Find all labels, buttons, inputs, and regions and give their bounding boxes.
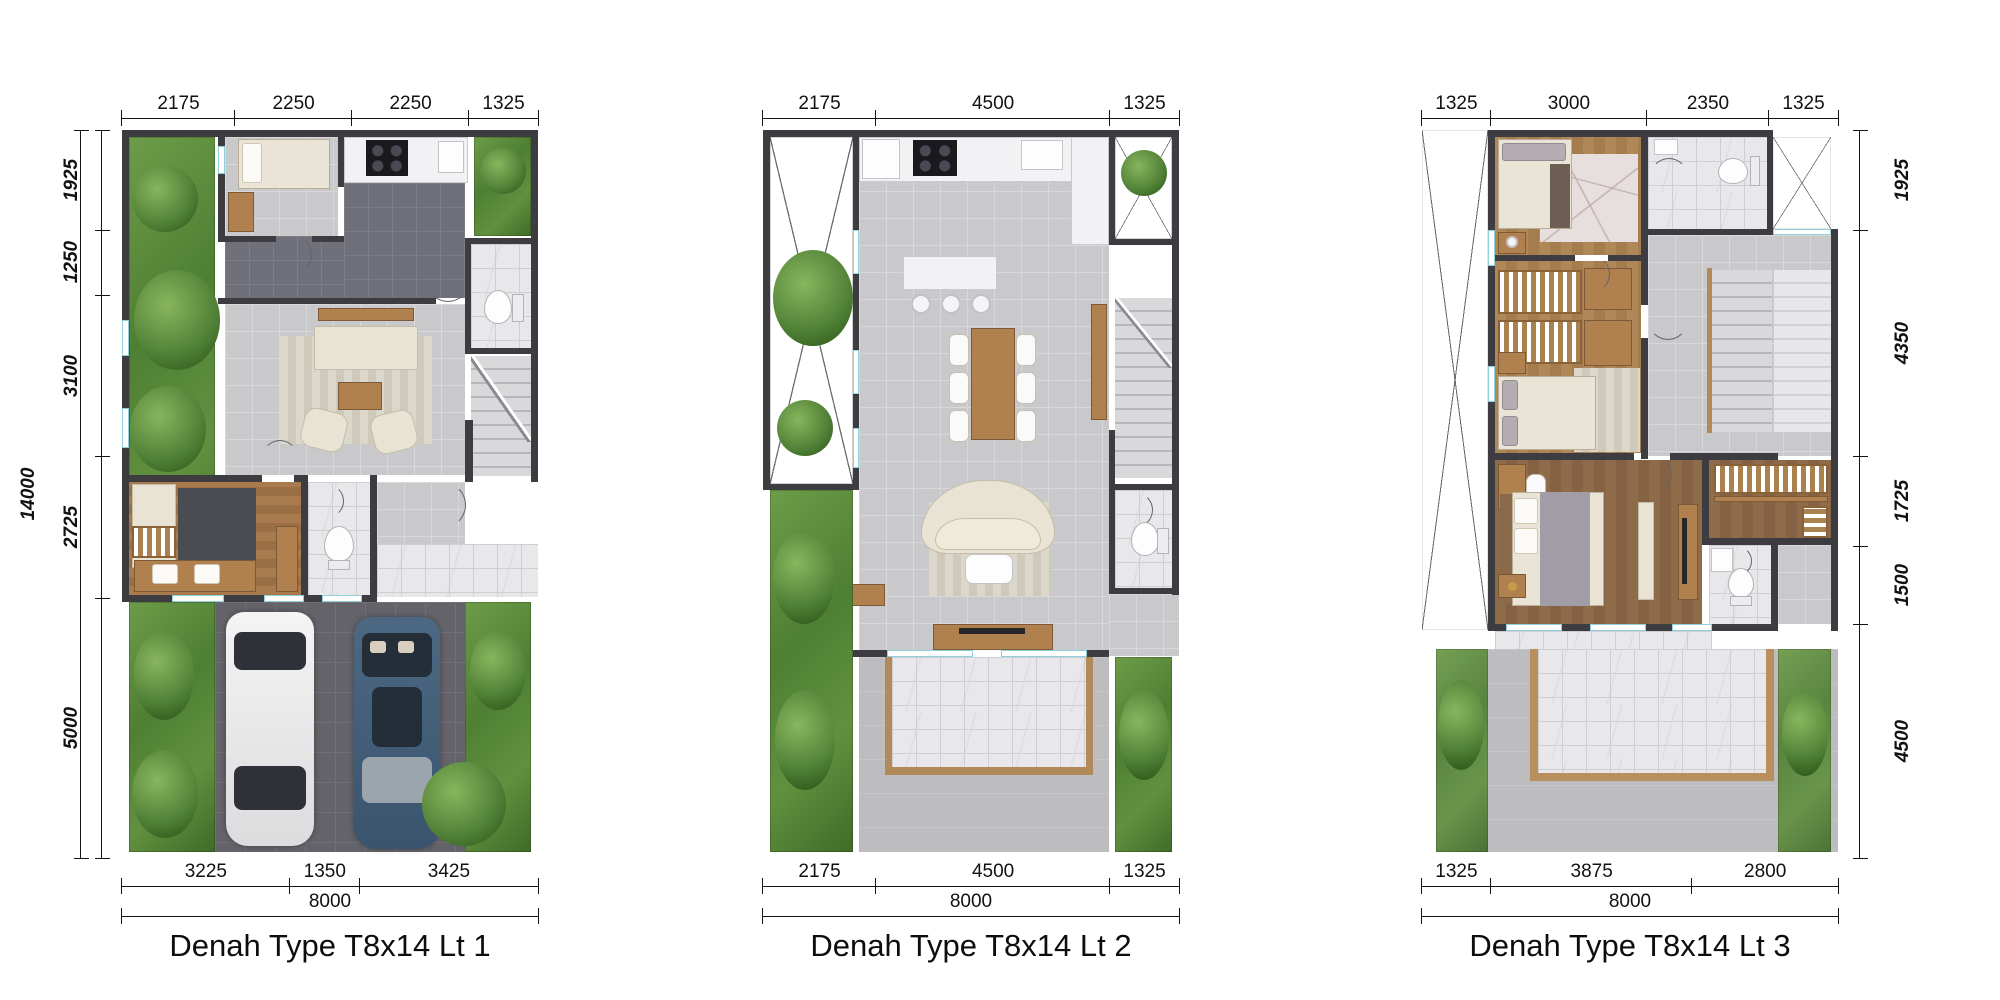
wall	[465, 238, 471, 354]
tree-icon	[773, 250, 853, 346]
window	[122, 320, 129, 356]
tv	[959, 628, 1025, 634]
dim-row-bottom: 1325 3875 2800	[1422, 862, 1838, 894]
nightstand	[1498, 352, 1526, 374]
closet-rack-side	[1802, 506, 1828, 538]
fridge	[862, 139, 900, 179]
dim-label: 8000	[763, 891, 1179, 913]
door-arc	[427, 260, 469, 302]
dim-segment: 1325	[1422, 862, 1491, 894]
door-arc	[1117, 492, 1153, 528]
dim-row-top: 2175 4500 1325	[763, 94, 1179, 126]
dim-tick	[1838, 908, 1839, 924]
dim-label: 4500	[876, 861, 1110, 883]
dim-row-overall: 8000	[763, 892, 1179, 924]
door-arc	[310, 484, 344, 518]
dim-segment: 2175	[763, 94, 876, 126]
dim-tick	[1838, 878, 1839, 894]
wall	[1767, 130, 1773, 235]
sink	[1654, 139, 1678, 155]
wall	[1771, 545, 1778, 631]
dim-label: 4350	[1892, 308, 1914, 378]
wall	[1488, 130, 1773, 137]
tv-console	[1678, 504, 1698, 600]
dim-label: 4500	[1892, 706, 1914, 776]
dim-segment: 3425	[360, 862, 538, 894]
dim-label: 3425	[360, 861, 538, 883]
window	[218, 146, 225, 174]
door-arc	[1572, 255, 1610, 293]
wall	[301, 475, 308, 595]
garden-faded-left	[1422, 130, 1488, 630]
wall	[1085, 650, 1109, 657]
dim-segment: 1325	[1769, 94, 1838, 126]
door-arc	[1648, 300, 1688, 340]
window	[172, 595, 224, 602]
cabinet	[276, 526, 298, 592]
dim-label: 1925	[61, 145, 83, 215]
dim-row-top: 2175 2250 2250 1325	[122, 94, 538, 126]
dim-label: 3875	[1491, 861, 1693, 883]
garden-faded-corner	[1773, 137, 1831, 229]
dim-segment: 3000	[1491, 94, 1647, 126]
dim-tick	[1853, 858, 1868, 859]
dim-tick	[74, 858, 89, 859]
car-seat	[398, 641, 414, 653]
window	[1488, 230, 1495, 266]
wall	[465, 238, 531, 244]
toilet	[484, 290, 512, 324]
stairs-landing	[1115, 298, 1172, 368]
dim-segment: 1325	[469, 94, 538, 126]
dim-label: 2175	[122, 93, 235, 115]
dim-label: 3100	[61, 341, 83, 411]
wall	[218, 236, 276, 242]
dim-segment: 2250	[235, 94, 352, 126]
wall	[1641, 338, 1648, 459]
dim-tick	[95, 456, 110, 457]
stairs-flight-up	[1712, 270, 1772, 432]
dark-rug	[178, 488, 256, 560]
pillow	[1502, 380, 1518, 410]
dim-tick	[1853, 624, 1868, 625]
bush-icon	[1782, 690, 1828, 776]
dim-line-left-segments: 1925 1250 3100 2725 5000	[101, 130, 102, 858]
dining-chair	[949, 372, 969, 404]
dining-chair	[949, 334, 969, 366]
sill-band	[1495, 631, 1712, 649]
dim-segment: 1325	[1422, 94, 1491, 126]
car-seat	[370, 641, 386, 653]
wall	[1702, 460, 1709, 544]
door-arc	[274, 236, 312, 274]
bush-icon	[773, 530, 835, 624]
bush-icon	[777, 400, 833, 456]
porch-floor	[377, 544, 538, 597]
coffee-table	[965, 554, 1013, 584]
window	[1488, 366, 1495, 402]
car-rear-glass	[362, 633, 432, 677]
dim-label: 5000	[61, 693, 83, 763]
floor-plan-sheet: 2175 2250 2250 1325 14000 1925 1250 3100…	[0, 0, 2000, 1000]
wall	[370, 475, 377, 595]
stairs-flight-ghost	[1774, 270, 1831, 432]
dim-label: 1250	[61, 227, 83, 297]
balcony	[1530, 649, 1774, 781]
dim-tick	[538, 908, 539, 924]
wall	[122, 130, 129, 595]
window	[264, 595, 304, 602]
pillow	[1502, 416, 1518, 446]
wall	[1831, 229, 1838, 631]
coffee-table	[338, 382, 382, 410]
dim-label: 2250	[235, 93, 352, 115]
wall	[1109, 484, 1179, 490]
lamp-icon	[1506, 236, 1518, 248]
dining-chair	[1016, 334, 1036, 366]
door-arc	[1650, 158, 1688, 196]
dim-tick	[1179, 878, 1180, 894]
dim-row-bottom: 2175 4500 1325	[763, 862, 1179, 894]
wall	[1109, 239, 1179, 245]
wall	[763, 130, 1179, 137]
wall	[763, 484, 859, 490]
dim-label: 1325	[1110, 93, 1179, 115]
dim-tick	[538, 110, 539, 126]
tree-icon	[134, 270, 220, 370]
dim-row-overall: 8000	[122, 892, 538, 924]
stair-rail	[1707, 268, 1712, 433]
wall	[1670, 453, 1778, 460]
sofa-seat	[935, 518, 1041, 550]
dim-tick	[1853, 546, 1868, 547]
tree-icon	[130, 386, 206, 472]
car-windshield	[234, 766, 306, 810]
bar-stool	[911, 294, 931, 314]
door-arc	[1722, 546, 1752, 576]
cabinet	[1091, 304, 1107, 420]
dim-tick	[1853, 230, 1868, 231]
wall	[1172, 130, 1179, 595]
door-arc	[420, 482, 466, 528]
pillow	[1502, 143, 1566, 161]
toilet-tank	[328, 560, 350, 570]
desk	[1584, 320, 1632, 366]
bush-icon	[1438, 680, 1484, 770]
dim-segment: 8000	[763, 892, 1179, 924]
window	[853, 230, 859, 274]
dim-tick	[1853, 456, 1868, 457]
stove-icon	[366, 140, 408, 176]
car-white	[226, 612, 314, 846]
closet-rack	[1714, 464, 1828, 494]
wall	[1702, 538, 1838, 545]
wall	[312, 236, 344, 242]
toilet	[1718, 158, 1748, 184]
side-floor	[1109, 594, 1179, 656]
bush-icon	[470, 630, 526, 710]
plan-title: Denah Type T8x14 Lt 3	[1422, 928, 1838, 964]
hall-floor-lower	[1778, 545, 1831, 624]
bush-icon	[422, 762, 506, 846]
dim-segment: 1325	[1110, 94, 1179, 126]
sink	[1021, 140, 1063, 170]
wardrobe	[132, 526, 176, 558]
bush-icon	[132, 750, 198, 838]
dim-segment: 8000	[122, 892, 538, 924]
wall	[1488, 453, 1634, 460]
wall	[763, 130, 770, 490]
wall	[122, 130, 538, 137]
dim-row-overall: 8000	[1422, 892, 1838, 924]
door-arc	[262, 440, 298, 476]
dim-tick	[95, 598, 110, 599]
dim-segment: 3225	[122, 862, 290, 894]
dim-tick	[95, 130, 110, 131]
sink	[438, 141, 464, 173]
dim-segment: 3875	[1491, 862, 1693, 894]
dim-label: 1500	[1892, 550, 1914, 620]
dim-label: 1325	[1769, 93, 1838, 115]
dim-segment: 2175	[763, 862, 876, 894]
sliding-door	[1001, 650, 1087, 657]
window	[122, 408, 129, 448]
dim-tick	[95, 295, 110, 296]
dim-tick	[1838, 110, 1839, 126]
dim-label: 4500	[876, 93, 1110, 115]
wall	[1495, 255, 1575, 261]
wall	[1109, 588, 1179, 594]
wall	[338, 137, 344, 187]
bar-stool	[941, 294, 961, 314]
dim-label: 1325	[1422, 93, 1491, 115]
dim-segment: 2800	[1692, 862, 1838, 894]
dim-label: 1350	[290, 861, 360, 883]
bar-stool	[971, 294, 991, 314]
dim-segment: 4500	[876, 94, 1110, 126]
car-windshield	[362, 757, 432, 803]
tv	[1682, 518, 1687, 584]
dim-label: 1325	[1422, 861, 1491, 883]
bush-icon	[134, 630, 194, 720]
dining-chair	[949, 410, 969, 442]
dim-label: 2250	[352, 93, 469, 115]
dim-tick	[1853, 130, 1868, 131]
closet-shelf	[1714, 496, 1828, 502]
bush-icon	[775, 690, 835, 790]
dim-segment: 4500	[876, 862, 1110, 894]
toilet-tank	[1750, 156, 1760, 186]
wardrobe	[1498, 270, 1582, 314]
dim-label: 2800	[1692, 861, 1838, 883]
bench	[1638, 502, 1654, 600]
stove-icon	[913, 140, 957, 176]
toilet	[324, 526, 354, 562]
dim-label: 8000	[1422, 891, 1838, 913]
tree-icon	[1121, 150, 1167, 196]
wall	[1641, 130, 1648, 235]
bed-runner	[1550, 164, 1570, 228]
dim-label: 2350	[1647, 93, 1769, 115]
window	[853, 350, 859, 394]
dim-label: 2725	[61, 492, 83, 562]
pillow	[242, 143, 262, 183]
dim-line-right-segments: 1925 4350 1725 1500 4500	[1859, 130, 1860, 858]
window	[853, 428, 859, 468]
dim-row-top: 1325 3000 2350 1325	[1422, 94, 1838, 126]
counter-column	[1071, 137, 1109, 245]
balcony	[885, 657, 1093, 775]
dim-label: 14000	[18, 459, 40, 529]
blanket	[1540, 492, 1590, 606]
car-rear-glass	[234, 632, 306, 670]
door-arc	[1632, 455, 1672, 495]
dim-label: 2175	[763, 861, 876, 883]
dim-label: 1925	[1892, 145, 1914, 215]
wall	[218, 298, 436, 304]
pillow	[194, 564, 220, 584]
dim-label: 1325	[469, 93, 538, 115]
dim-segment: 1350	[290, 862, 360, 894]
floor-plan-lt3: 1325 3000 2350 1325 1925 4350 1725 1500 …	[1422, 130, 1838, 858]
wall	[1109, 130, 1115, 245]
dim-tick	[538, 878, 539, 894]
window	[1506, 624, 1562, 631]
dim-segment: 2350	[1647, 94, 1769, 126]
toilet-tank	[1730, 596, 1752, 606]
pillow	[152, 564, 178, 584]
kitchen-island	[903, 256, 997, 290]
dim-tick	[74, 130, 89, 131]
toilet-tank	[1157, 528, 1169, 554]
wall	[531, 130, 538, 482]
lamp-icon	[1508, 582, 1517, 591]
wall	[1109, 430, 1115, 490]
toilet-tank	[512, 294, 524, 322]
dim-segment: 8000	[1422, 892, 1838, 924]
car-sunroof	[372, 687, 422, 747]
dining-chair	[1016, 372, 1036, 404]
pillow	[1514, 498, 1538, 524]
floor-plan-lt1: 2175 2250 2250 1325 14000 1925 1250 3100…	[122, 130, 538, 858]
dim-label: 8000	[122, 891, 538, 913]
floor-plan-lt2: 2175 4500 1325	[763, 130, 1179, 858]
pillow	[1514, 528, 1538, 554]
console-table	[318, 308, 414, 321]
bush-icon	[1119, 690, 1169, 780]
desk	[228, 192, 254, 232]
dim-label: 1725	[1892, 466, 1914, 536]
plan-title: Denah Type T8x14 Lt 1	[122, 928, 538, 964]
wall	[1608, 255, 1641, 261]
dim-label: 3000	[1491, 93, 1647, 115]
wall	[1641, 235, 1648, 305]
dim-tick	[1179, 110, 1180, 126]
wall	[1641, 229, 1773, 235]
window	[1590, 624, 1646, 631]
dim-label: 1325	[1110, 861, 1179, 883]
wall	[1109, 484, 1115, 594]
dim-tick	[1179, 908, 1180, 924]
dining-chair	[1016, 410, 1036, 442]
dim-segment: 2175	[122, 94, 235, 126]
dim-label: 2175	[763, 93, 876, 115]
stairs-diagonal	[471, 356, 531, 442]
dim-tick	[95, 230, 110, 231]
sliding-door	[887, 650, 973, 657]
dim-label: 3225	[122, 861, 290, 883]
dim-row-bottom: 3225 1350 3425	[122, 862, 538, 894]
wall	[122, 475, 262, 482]
wall	[465, 420, 473, 482]
wall	[465, 348, 538, 354]
window	[1672, 624, 1712, 631]
dining-table	[971, 328, 1015, 440]
dim-tick	[95, 858, 110, 859]
window	[322, 595, 362, 602]
dim-segment: 2250	[352, 94, 469, 126]
sofa	[314, 326, 418, 370]
wall	[853, 650, 887, 657]
tree-icon	[480, 148, 526, 194]
dim-segment: 1325	[1110, 862, 1179, 894]
plan-title: Denah Type T8x14 Lt 2	[763, 928, 1179, 964]
tree-icon	[132, 166, 198, 232]
